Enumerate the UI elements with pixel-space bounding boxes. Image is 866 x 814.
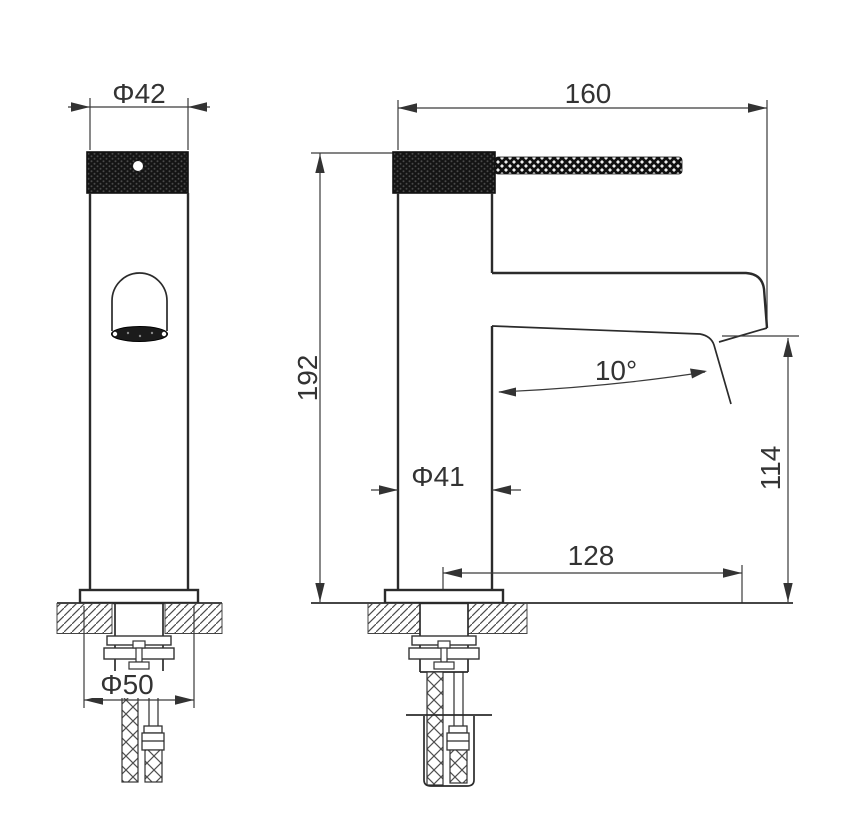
faucet-technical-drawing: Φ42 xyxy=(0,0,866,809)
arrowhead xyxy=(398,103,417,112)
base-plate-front xyxy=(80,590,198,603)
dim-cap-diameter: Φ42 xyxy=(68,78,210,150)
body-outline-side xyxy=(398,193,492,590)
dim-label-spout-reach: 128 xyxy=(568,540,615,571)
arrowhead xyxy=(71,102,90,111)
arrowhead xyxy=(783,583,792,602)
dim-label-cap-diameter: Φ42 xyxy=(112,78,165,109)
supply-hose-braided xyxy=(427,672,443,785)
arrowhead xyxy=(315,154,324,173)
dim-spout-angle: 10° xyxy=(498,355,707,397)
arrowhead xyxy=(690,369,707,379)
body-outline-front xyxy=(90,193,188,590)
arrowhead xyxy=(315,583,324,602)
dim-label-body-diameter: Φ41 xyxy=(411,461,464,492)
dim-label-spout-angle: 10° xyxy=(595,355,637,386)
dim-label-outlet-height: 114 xyxy=(755,446,786,491)
base-plate-side xyxy=(385,590,503,603)
arrowhead xyxy=(175,695,194,704)
aerator xyxy=(112,327,168,342)
arrowhead xyxy=(498,388,516,397)
supply-hose-connector xyxy=(142,726,164,782)
handle-lever xyxy=(495,157,682,174)
counter-section-side xyxy=(311,603,793,634)
mounting-shank-side xyxy=(409,603,479,672)
arrowhead xyxy=(188,102,207,111)
supply-hoses-side xyxy=(406,672,492,786)
arrowhead xyxy=(443,568,462,577)
dim-outlet-height: 114 xyxy=(722,336,799,602)
spout-window xyxy=(112,273,168,341)
cap-dot xyxy=(133,161,143,171)
dim-label-total-height: 192 xyxy=(292,355,323,402)
dim-body-diameter: Φ41 xyxy=(371,461,521,495)
arrowhead xyxy=(492,485,511,494)
dim-label-overall-depth: 160 xyxy=(565,78,612,109)
cap-knurled xyxy=(87,152,188,193)
cap-knurled-side xyxy=(393,152,495,193)
arrowhead xyxy=(723,568,742,577)
drawing-canvas: Φ42 xyxy=(0,0,866,809)
arrowhead xyxy=(783,338,792,357)
front-view: Φ42 xyxy=(57,78,222,782)
dim-total-height: 192 xyxy=(292,153,393,602)
dim-overall-depth: 160 xyxy=(398,78,767,328)
arrowhead xyxy=(379,485,398,494)
arrowhead xyxy=(748,103,767,112)
dim-label-base-diameter: Φ50 xyxy=(100,669,153,700)
side-view: 160 192 xyxy=(292,78,799,786)
supply-hose-connector xyxy=(447,726,469,783)
mounting-shank-front xyxy=(104,603,174,672)
counter-section-front xyxy=(57,603,222,634)
